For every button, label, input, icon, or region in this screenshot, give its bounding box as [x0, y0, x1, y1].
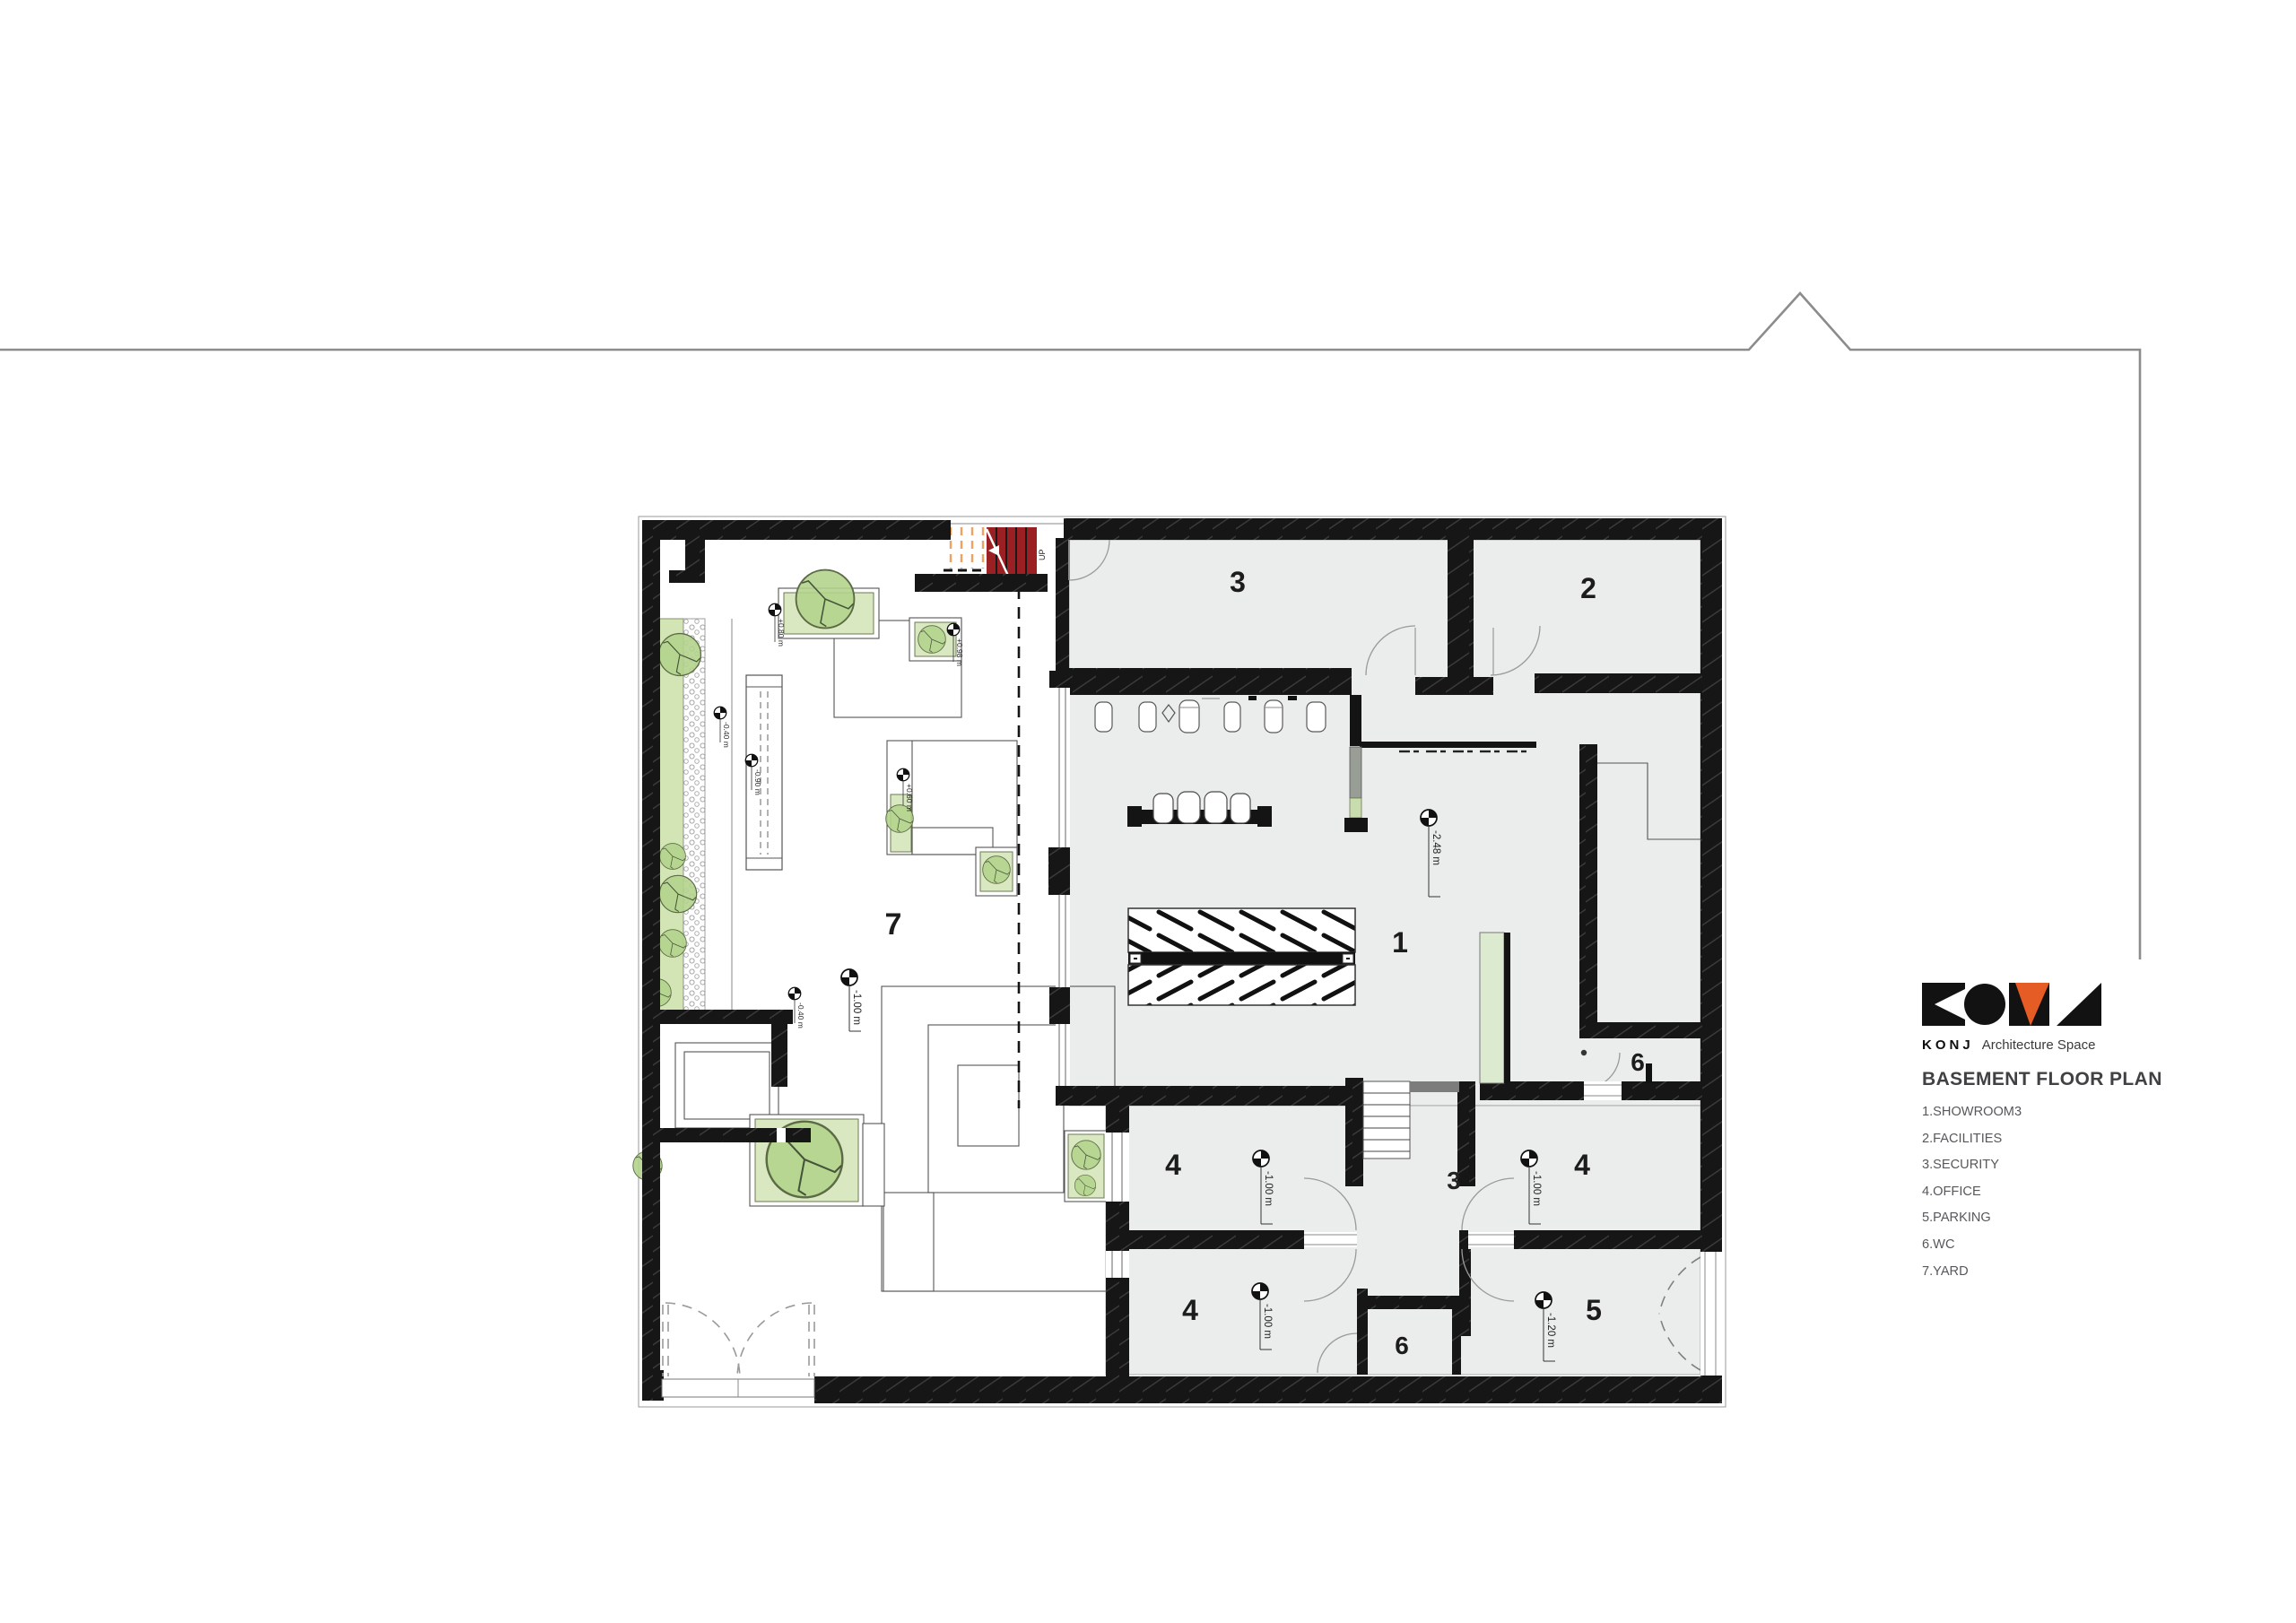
red-staircase: UP — [944, 524, 1064, 577]
legend-item-facilities: 2.FACILITIES — [1922, 1126, 2281, 1153]
pebble-strip — [683, 619, 705, 1011]
logo-k-shape — [1922, 983, 1965, 1026]
legend-items: 1.SHOWROOM3 2.FACILITIES 3.SECURITY 4.OF… — [1922, 1099, 2281, 1285]
elevation-value: -2.48 m — [1431, 830, 1441, 865]
stair-landing — [1410, 1081, 1459, 1092]
elevation-value: -0.40 m — [722, 722, 731, 748]
room-label-wc-upper: 6 — [1631, 1048, 1645, 1076]
room-label-office-3: 4 — [1182, 1294, 1198, 1326]
legend-item-showroom: 1.SHOWROOM3 — [1922, 1099, 2281, 1126]
room-label-wc-lower: 6 — [1395, 1332, 1409, 1359]
logo-j-shape — [2057, 983, 2101, 1026]
floor-plan-drawing: UP — [0, 0, 2296, 1623]
legend-item-wc: 6.WC — [1922, 1232, 2281, 1259]
legend-item-yard: 7.YARD — [1922, 1259, 2281, 1286]
brand-line: KONJArchitecture Space — [1922, 1037, 2281, 1053]
rug — [1128, 908, 1355, 1005]
elevation-value: -1.00 m — [1262, 1304, 1273, 1339]
yard-gate — [663, 1303, 814, 1379]
room-label-office-2: 4 — [1574, 1149, 1590, 1181]
room-label-security: 3 — [1230, 566, 1246, 598]
konj-logo — [1922, 983, 2106, 1028]
legend-item-security: 3.SECURITY — [1922, 1152, 2281, 1179]
elevation-value: -0.40 m — [796, 1002, 805, 1028]
elevation-value: -1.00 m — [851, 990, 862, 1025]
elevation-value: +0.80 m — [777, 619, 786, 647]
logo-o-shape — [1964, 984, 2005, 1025]
elevation-value: -1.00 m — [1263, 1171, 1274, 1206]
room-label-facilities: 2 — [1580, 572, 1596, 604]
plan-title: BASEMENT FLOOR PLAN — [1922, 1069, 2281, 1090]
elevation-value: -1.00 m — [1531, 1171, 1542, 1206]
brand-rest: Architecture Space — [1982, 1037, 2096, 1053]
stair-number: 3 — [1447, 1167, 1461, 1194]
legend-item-office: 4.OFFICE — [1922, 1179, 2281, 1206]
elevation-value: +0.98 m — [955, 638, 964, 666]
room-label-showroom: 1 — [1392, 926, 1408, 959]
room-label-yard: 7 — [885, 907, 902, 942]
elevation-value: -0.90 m — [753, 769, 762, 795]
legend-item-parking: 5.PARKING — [1922, 1205, 2281, 1232]
stair-up-label: UP — [1038, 549, 1047, 560]
legend: KONJArchitecture Space BASEMENT FLOOR PL… — [1922, 983, 2281, 1285]
green-wall — [1480, 933, 1510, 1083]
elevation-value: -1.20 m — [1545, 1313, 1556, 1348]
room-label-office-1: 4 — [1165, 1149, 1181, 1181]
room-label-parking: 5 — [1586, 1294, 1602, 1326]
page: UP — [0, 0, 2296, 1623]
yard — [633, 570, 1115, 1291]
elevation-value: +0.60 m — [905, 784, 914, 811]
brand-bold: KONJ — [1922, 1037, 1974, 1053]
